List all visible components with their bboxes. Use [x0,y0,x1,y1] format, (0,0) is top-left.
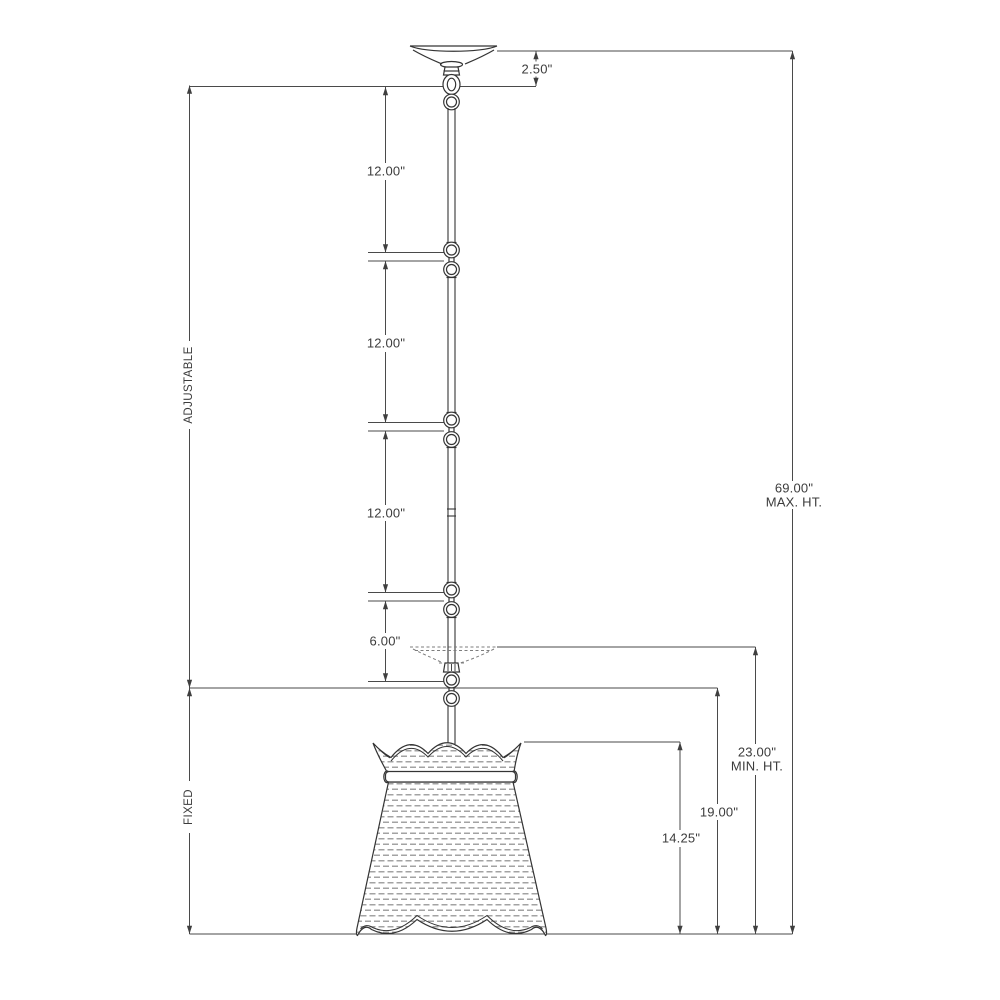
ceiling-canopy [410,46,497,75]
fixed-label: FIXED [183,789,195,825]
dimension-drawing-canvas: 2.50" 12.00" 12.00" 12.00" 6.00" ADJUSTA… [0,0,1000,1000]
dim-stem-section-1-label: 12.00" [367,164,405,179]
adjustable-label: ADJUSTABLE [183,346,195,423]
min-height-caption: MIN. HT. [731,759,783,773]
dim-fixed-drop-label: 19.00" [700,805,738,820]
shade-crown [373,743,521,772]
dashed-canopy-min-position [410,647,497,663]
fixture-line-art [0,0,1000,1000]
canopy-hang-loop [443,75,460,110]
max-height-label: 69.00" MAX. HT. [766,482,823,509]
shade-hang-assembly [444,663,460,706]
dim-canopy-height-label: 2.50" [522,62,553,77]
dim-stem-section-2-label: 12.00" [367,336,405,351]
lamp-shade [356,743,546,936]
shade-collar-band [384,771,517,783]
dim-shade-height-label: 14.25" [662,831,700,846]
stem-coupler-2 [444,412,460,447]
min-height-label: 23.00" MIN. HT. [731,746,783,773]
dim-stem-section-3-label: 12.00" [367,506,405,521]
min-height-value: 23.00" [731,746,783,760]
pendant-fixture [356,46,546,936]
max-height-value: 69.00" [766,482,823,496]
stem-coupler-3 [444,582,460,617]
shade-body [356,782,546,936]
max-height-caption: MAX. HT. [766,495,823,509]
dim-stem-section-4-label: 6.00" [370,634,401,649]
stem-coupler-1 [444,242,460,277]
